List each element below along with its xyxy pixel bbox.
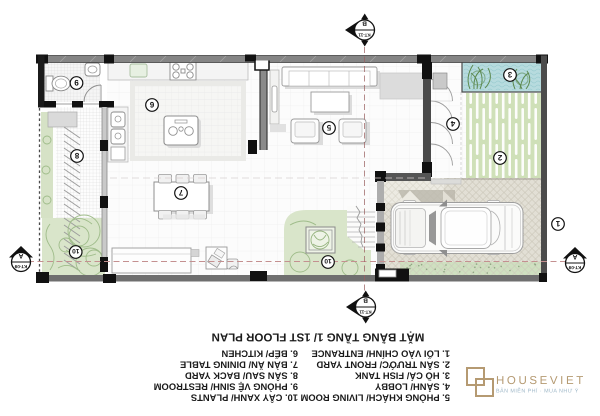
- svg-text:5: 5: [326, 123, 331, 132]
- svg-text:A: A: [18, 252, 23, 259]
- svg-text:10: 10: [72, 247, 80, 254]
- svg-text:KT-11: KT-11: [358, 32, 371, 37]
- svg-text:KT-11: KT-11: [359, 309, 372, 314]
- svg-text:BẢN MIỄN PHÍ · MUA NHƯ Ý: BẢN MIỄN PHÍ · MUA NHƯ Ý: [496, 388, 579, 395]
- svg-text:HOUSEVIET: HOUSEVIET: [496, 375, 586, 387]
- svg-text:2: 2: [497, 153, 502, 162]
- svg-text:6: 6: [149, 100, 154, 109]
- svg-text:10. CÂY XANH/ PLANTS: 10. CÂY XANH/ PLANTS: [191, 392, 298, 403]
- svg-text:9. PHÒNG VỆ SINH/ RESTROOM: 9. PHÒNG VỆ SINH/ RESTROOM: [154, 381, 298, 392]
- svg-text:MẶT BẰNG TẦNG 1/ 1ST FLOOR PLA: MẶT BẰNG TẦNG 1/ 1ST FLOOR PLAN: [212, 330, 425, 344]
- svg-text:B: B: [363, 297, 368, 304]
- svg-text:A: A: [572, 253, 577, 260]
- svg-text:B: B: [362, 20, 367, 27]
- svg-text:8: 8: [74, 151, 79, 160]
- svg-text:2. SÂN TRƯỚC/ FRONT YARD: 2. SÂN TRƯỚC/ FRONT YARD: [316, 359, 450, 370]
- svg-text:10: 10: [324, 257, 332, 264]
- svg-text:1. LỐI VÀO CHÍNH/ ENTRANCE: 1. LỐI VÀO CHÍNH/ ENTRANCE: [311, 348, 450, 359]
- svg-text:6. BẾP/ KITCHEN: 6. BẾP/ KITCHEN: [221, 348, 298, 359]
- svg-text:4: 4: [450, 119, 455, 128]
- svg-text:KT-09: KT-09: [568, 265, 581, 270]
- svg-text:3. HỒ CÁ/ FISH TANK: 3. HỒ CÁ/ FISH TANK: [355, 370, 450, 381]
- svg-text:8. SÂN SAU/ BACK YARD: 8. SÂN SAU/ BACK YARD: [185, 370, 298, 381]
- svg-text:1: 1: [555, 219, 560, 228]
- svg-text:5. PHÒNG KHÁCH/ LIVING ROOM: 5. PHÒNG KHÁCH/ LIVING ROOM: [300, 392, 450, 403]
- svg-text:7: 7: [178, 188, 183, 197]
- svg-text:KT-09: KT-09: [14, 264, 27, 269]
- svg-text:3: 3: [507, 70, 512, 79]
- svg-text:4. SẢNH/ LOBBY: 4. SẢNH/ LOBBY: [374, 381, 450, 392]
- svg-text:9: 9: [74, 78, 79, 87]
- svg-text:7. BÀN ĂN/ DINING TABLE: 7. BÀN ĂN/ DINING TABLE: [180, 359, 298, 370]
